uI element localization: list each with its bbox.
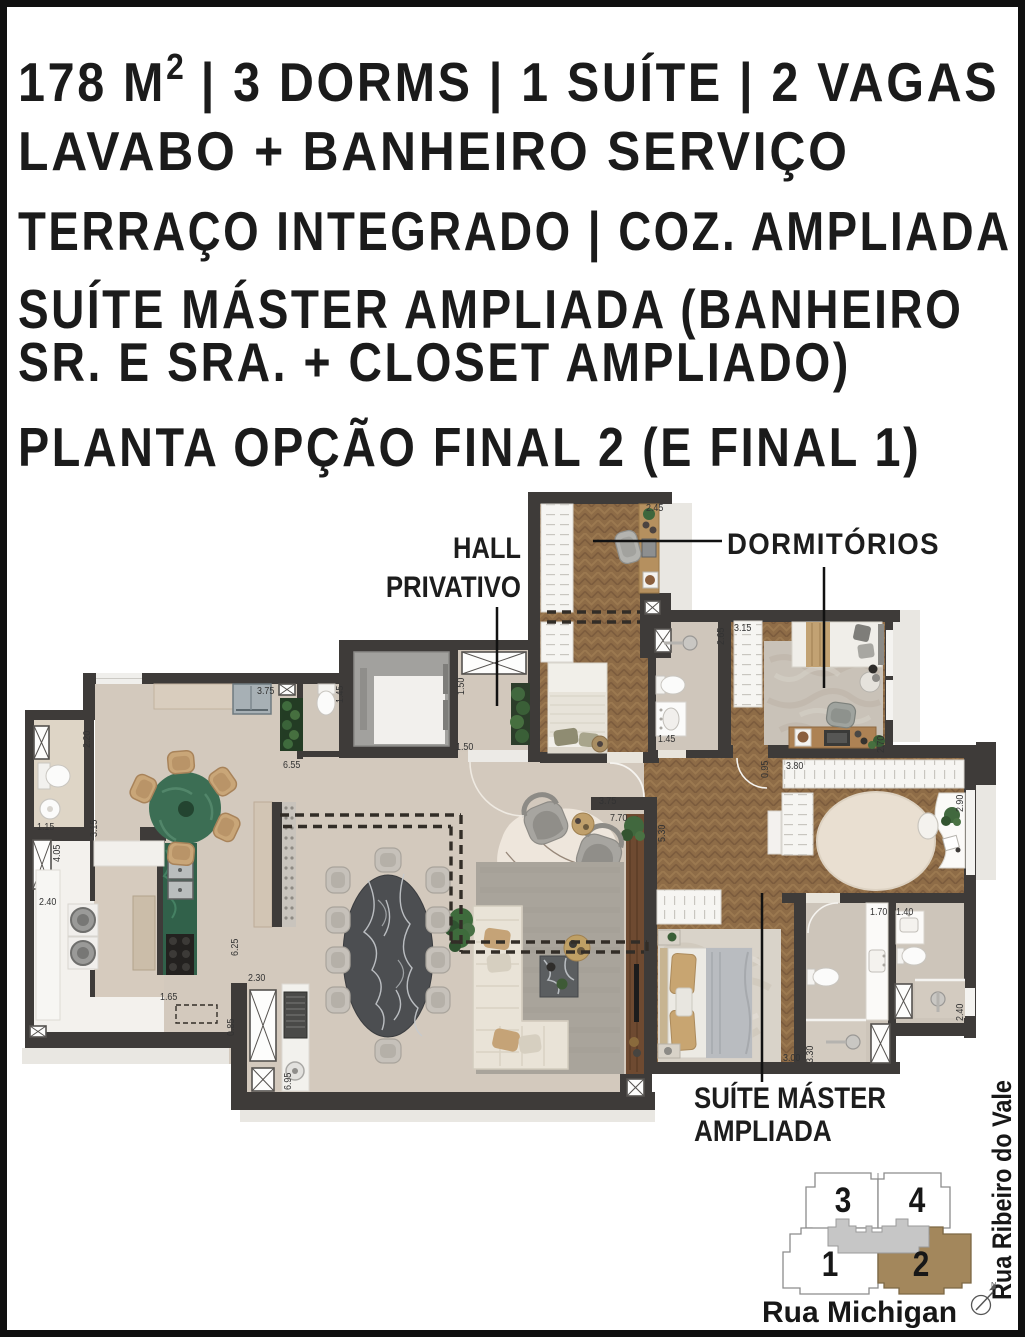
svg-text:1.50: 1.50 bbox=[455, 677, 467, 695]
svg-text:2.45: 2.45 bbox=[646, 502, 663, 514]
svg-text:AMPLIADA: AMPLIADA bbox=[694, 1114, 832, 1147]
svg-text:N: N bbox=[991, 1280, 996, 1289]
svg-text:2.20: 2.20 bbox=[81, 730, 93, 748]
svg-text:DORMITÓRIOS: DORMITÓRIOS bbox=[727, 526, 940, 561]
svg-text:6.95: 6.95 bbox=[282, 1073, 294, 1090]
svg-text:2: 2 bbox=[913, 1245, 930, 1284]
svg-text:1.65: 1.65 bbox=[160, 991, 177, 1003]
svg-text:3.15: 3.15 bbox=[734, 622, 751, 634]
svg-text:2.65: 2.65 bbox=[715, 628, 727, 645]
svg-text:Rua Ribeiro do Vale: Rua Ribeiro do Vale bbox=[988, 1080, 1018, 1300]
svg-text:1: 1 bbox=[822, 1245, 839, 1284]
svg-text:PRIVATIVO: PRIVATIVO bbox=[386, 570, 521, 603]
svg-text:2.30: 2.30 bbox=[248, 972, 266, 984]
svg-text:2.90: 2.90 bbox=[954, 794, 966, 812]
svg-text:1.70: 1.70 bbox=[870, 906, 888, 918]
svg-text:1.45: 1.45 bbox=[658, 733, 675, 745]
svg-text:3.00: 3.00 bbox=[783, 1052, 801, 1064]
svg-text:3.75: 3.75 bbox=[599, 795, 616, 807]
svg-text:0.85: 0.85 bbox=[225, 1019, 237, 1036]
svg-text:3: 3 bbox=[835, 1181, 852, 1220]
svg-text:6.25: 6.25 bbox=[229, 939, 241, 956]
svg-text:2.70: 2.70 bbox=[875, 735, 887, 753]
svg-text:1.45: 1.45 bbox=[334, 686, 346, 703]
svg-text:Rua Michigan: Rua Michigan bbox=[762, 1296, 957, 1329]
svg-text:0.95: 0.95 bbox=[759, 761, 771, 778]
svg-text:4.05: 4.05 bbox=[51, 845, 63, 862]
svg-text:1.40: 1.40 bbox=[896, 906, 914, 918]
svg-text:1.50: 1.50 bbox=[456, 741, 474, 753]
svg-text:3.75: 3.75 bbox=[257, 685, 274, 697]
svg-text:HALL: HALL bbox=[453, 531, 521, 564]
svg-text:SUÍTE MÁSTER: SUÍTE MÁSTER bbox=[694, 1081, 886, 1114]
svg-text:2.40: 2.40 bbox=[954, 1003, 966, 1021]
svg-text:6.55: 6.55 bbox=[283, 759, 300, 771]
svg-text:7.70: 7.70 bbox=[610, 812, 628, 824]
svg-text:2.40: 2.40 bbox=[39, 896, 57, 908]
svg-text:1.15: 1.15 bbox=[37, 821, 54, 833]
svg-text:5.30: 5.30 bbox=[656, 824, 668, 842]
svg-text:4: 4 bbox=[909, 1181, 926, 1220]
svg-text:3.80: 3.80 bbox=[786, 760, 804, 772]
svg-text:3.30: 3.30 bbox=[804, 1045, 816, 1063]
svg-text:3.15: 3.15 bbox=[88, 820, 100, 837]
